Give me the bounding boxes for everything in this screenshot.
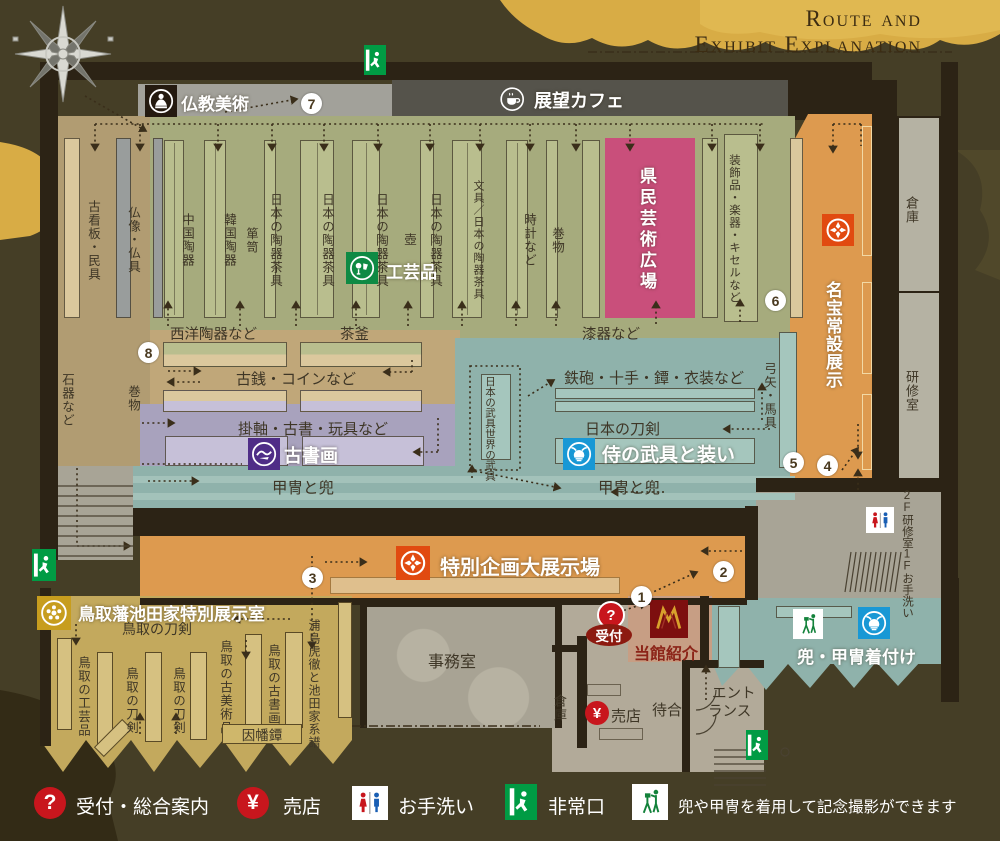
weapons-japan-label: 日本の武具: [484, 376, 496, 429]
exit-icon: [364, 45, 386, 75]
samurai-gear-label: 侍の武具と装い: [602, 440, 735, 467]
route-number-4: 4: [817, 455, 838, 476]
training-room-label: 研修室: [902, 346, 921, 436]
armor-helmet-label-right: 甲冑と兜: [598, 476, 660, 498]
compass-rose: [6, 0, 118, 110]
col-label-tansu: 箪笥: [242, 150, 261, 330]
shop-label: 売店: [611, 705, 641, 726]
page-title: Route and Exhibit Explanation: [695, 6, 922, 59]
calligraphy-icon: [248, 438, 280, 470]
legend-toilet-label: お手洗い: [398, 792, 474, 819]
restroom-stair-label: 2F研修室1Fお手洗い: [899, 490, 915, 594]
col-label-kanban: 古看板・民具: [84, 150, 103, 330]
waiting-label: 待合: [652, 699, 682, 720]
armor-helmet-label-left: 甲冑と兜: [272, 476, 334, 498]
exit-icon: [32, 549, 56, 581]
scroll-label: 巻物: [124, 368, 143, 428]
col-label-bungu: 文具／日本の陶器茶具: [470, 146, 486, 334]
inaba-tsuba-label: 因幡鐔: [242, 724, 283, 744]
bow-horse-label: 弓矢・馬具: [760, 334, 779, 458]
route-number-8: 8: [138, 342, 159, 363]
cafe-icon: [497, 84, 527, 114]
armor-dressing-label: 兜・甲冑着付け: [797, 643, 916, 668]
kosyoga-label: 古書画: [284, 442, 338, 468]
reception-label: 受付: [596, 625, 623, 645]
route-number-2: 2: [713, 561, 734, 582]
col-label-tea1: 日本の陶器茶具: [266, 150, 285, 330]
western-ceramics-label: 西洋陶器など: [170, 323, 257, 344]
storage-lower-label: 倉庫: [550, 684, 569, 732]
legend-toilet-icon: [352, 786, 388, 820]
col-label-korea: 韓国陶器: [220, 150, 239, 330]
special-exhibition-label: 特別企画大展示場: [440, 551, 600, 580]
col-label-makimono: 巻物: [548, 150, 567, 330]
legend-yen-icon: ¥: [237, 787, 269, 819]
route-number-1: 1: [631, 586, 652, 607]
weapons-box-label: 日本の武具世界の武具: [483, 376, 498, 458]
route-number-7: 7: [301, 93, 322, 114]
treasure-exhibit-label: 名宝常設展示: [820, 250, 845, 420]
route-number-5: 5: [783, 452, 804, 473]
coins-label: 古銭・コインなど: [236, 368, 356, 389]
route-number-3: 3: [302, 567, 323, 588]
col-label-china: 中国陶器: [178, 150, 197, 330]
buddhist-art-label: 仏教美術: [181, 90, 249, 115]
legend-question-icon: ?: [34, 787, 66, 819]
weapons-world-label: 世界の武具: [484, 429, 496, 482]
craft-label: 工芸品: [386, 258, 437, 283]
col-label-decorations: 装飾品・楽器・キセルなど: [726, 138, 742, 320]
museum-floor-map: Route and Exhibit Explanation 仏教美術 7 展望カ…: [0, 0, 1000, 841]
exit-icon: [746, 730, 768, 760]
cafe-label: 展望カフェ: [534, 87, 624, 113]
page-title-line2: Exhibit Explanation: [695, 32, 922, 58]
legend-photo-icon: [632, 784, 668, 820]
legend-reception-label: 受付・総合案内: [76, 792, 209, 819]
col-label-tea4: 日本の陶器茶具: [426, 150, 445, 330]
tottori-crafts-label: 鳥取の工芸品: [74, 646, 93, 746]
museum-intro-label: 当館紹介: [634, 640, 698, 664]
treasure-crest-icon: [822, 214, 854, 246]
legend-exit-label: 非常口: [548, 792, 605, 819]
tottori-crest-icon: [37, 596, 71, 630]
tottori-calligraphy-label: 鳥取の古書画: [264, 634, 283, 734]
col-label-butsuzo: 仏像・仏具: [124, 150, 143, 330]
tottori-swords1-label: 鳥取の刀剣: [122, 654, 141, 748]
japanese-swords-label: 日本の刀剣: [585, 418, 660, 439]
samurai-helmet-icon: [563, 438, 595, 470]
guns-label: 鉄砲・十手・鐔・衣装など: [564, 367, 744, 388]
toilet-icon: [866, 507, 894, 533]
entrance-label-line2: ランス: [708, 700, 751, 721]
museum-logo-icon: [650, 600, 688, 638]
visitor-route-lines: [0, 0, 1000, 841]
urashima-genealogy-label: 浦島虎徹と池田家系譜: [306, 608, 323, 760]
chagama-label: 茶釜: [340, 323, 369, 344]
craft-icon: [346, 252, 378, 284]
page-title-line1: Route and: [695, 6, 922, 32]
stoneware-label: 石器など: [58, 360, 77, 440]
yen-icon: ¥: [585, 701, 609, 725]
legend-exit-icon: [505, 784, 537, 820]
route-number-6: 6: [765, 290, 786, 311]
legend-shop-label: 売店: [283, 792, 321, 819]
storage-room-label: 倉庫: [902, 170, 921, 250]
col-label-tea2: 日本の陶器茶具: [318, 150, 337, 330]
tottori-swords-top-label: 鳥取の刀剣: [122, 619, 192, 639]
legend-photo-label: 兜や甲冑を着用して記念撮影ができます: [678, 795, 957, 817]
citizen-art-plaza-label: 県民芸術広場: [634, 146, 659, 314]
col-label-tsubo: 壺: [400, 150, 419, 330]
col-label-tea3: 日本の陶器茶具: [372, 150, 391, 330]
office-label: 事務室: [428, 648, 476, 672]
col-label-tokei: 時計など: [520, 150, 539, 330]
buddha-icon: [145, 85, 177, 117]
samurai-helmet-icon: [858, 607, 890, 639]
f1-toilet-label: 1Fお手洗い: [901, 549, 913, 619]
special-crest-icon: [396, 546, 430, 580]
lacquer-label: 漆器など: [582, 323, 640, 344]
photo-icon: [793, 609, 823, 639]
f2-training-label: 2F研修室: [901, 490, 913, 549]
tottori-swords2-label: 鳥取の刀剣: [169, 654, 188, 748]
kakejiku-label: 掛軸・古書・玩具など: [238, 418, 388, 439]
